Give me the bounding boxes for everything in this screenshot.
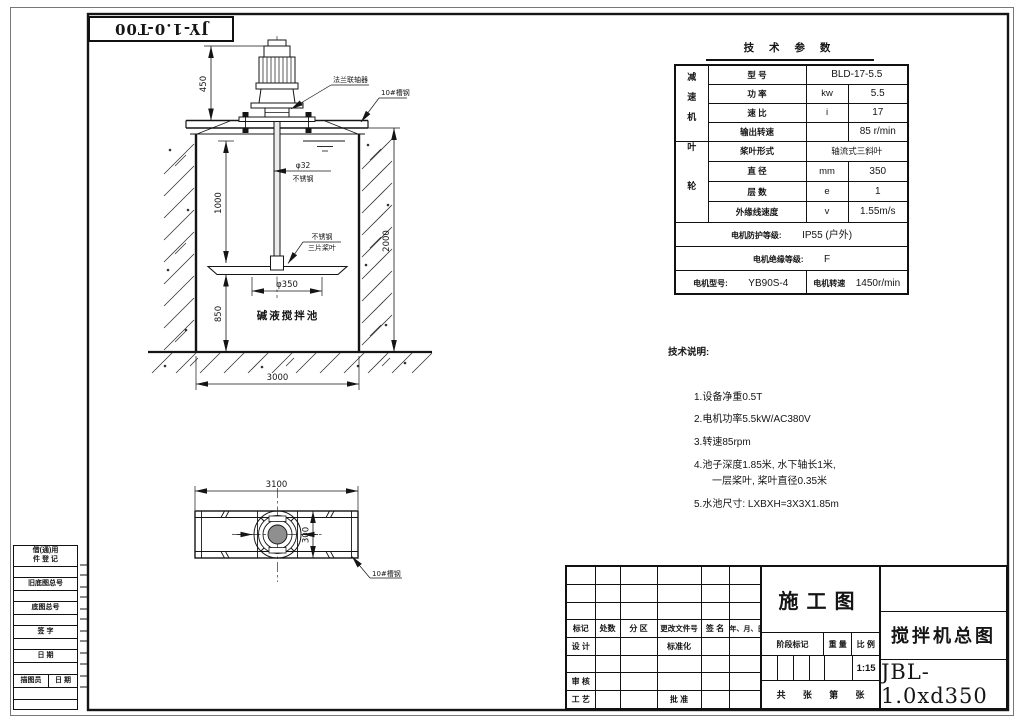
water-level-symbol [303, 141, 345, 151]
role-approve: 批 准 [657, 690, 701, 708]
param-unit [806, 122, 848, 141]
hdr-stage-mark: 阶段标记 [762, 633, 824, 655]
param-name: 层 数 [708, 182, 806, 202]
blank-row [14, 688, 77, 700]
role-review: 审 核 [567, 673, 595, 691]
dim-underwater-shaft: 1000 [214, 192, 224, 214]
motor-body [259, 57, 295, 83]
sheets-total-label: 共 [777, 688, 786, 701]
sheets-no-label: 第 [829, 688, 838, 701]
motor-speed-cell: 电机转速 1450r/min [806, 270, 908, 294]
stage-mark-cell [794, 656, 810, 680]
param-name: 输出转速 [708, 122, 806, 141]
earth-hatch-left [164, 144, 194, 350]
drawing-sheet: 450 1000 850 2000 φ350 3000 法兰联轴器 10#槽钢 … [0, 0, 1024, 723]
motor-insulation-row: 电机绝缘等级: F [675, 246, 908, 270]
note-item: 5.水池尺寸: LXBXH=3X3X1.85m [694, 495, 839, 510]
sign-row: 签 字 [14, 626, 77, 639]
hdr-zone: 分 区 [620, 620, 657, 638]
hdr-count: 处数 [595, 620, 620, 638]
title-block: 标记 处数 分 区 更改文件号 签 名 年、月、日 设 计 标准化 审 核 工 … [565, 565, 1008, 710]
dim-blade-diameter: φ350 [276, 280, 298, 290]
param-value: 1 [848, 182, 908, 202]
old-base-no-row: 旧底图总号 [14, 578, 77, 591]
sheets-unit: 张 [855, 688, 864, 701]
elevation-dimensions [196, 46, 400, 390]
tech-params-table: 减速机 型 号 BLD-17-5.5 功 率 kw 5.5 速 比 i 17 输… [674, 64, 909, 295]
borrowed-parts-row: 借(通)用件 登 记 [14, 546, 77, 567]
blank-row [14, 663, 77, 675]
param-value: 轴流式三斜叶 [806, 141, 908, 161]
dim-blade-to-bottom: 850 [214, 306, 224, 322]
mixer-shaft [274, 117, 280, 263]
tech-notes-title: 技术说明: [668, 344, 709, 358]
motor-protection-row: 电机防护等级: IP55 (户外) [675, 222, 908, 246]
base-no-row: 底图总号 [14, 602, 77, 615]
title-block-middle: 施工图 阶段标记 重 量 比 例 1:15 共 张 第 张 [760, 567, 879, 708]
param-name: 桨叶形式 [708, 141, 806, 161]
param-unit: kw [806, 84, 848, 103]
param-unit: i [806, 103, 848, 122]
param-value: 85 r/min [848, 122, 908, 141]
hdr-date: 年、月、日 [729, 620, 760, 638]
param-unit: e [806, 182, 848, 202]
label-channel-steel-elev: 10#槽钢 [381, 88, 410, 97]
tracer-row: 描图员 日 期 [14, 675, 77, 688]
drawing-code: JY-1.0-T00 [114, 20, 208, 38]
hdr-mark: 标记 [567, 620, 595, 638]
params-table-title: 技 术 参 数 [706, 40, 874, 61]
param-value: BLD-17-5.5 [806, 65, 908, 84]
sheets-unit: 张 [803, 688, 812, 701]
note-item: 一层桨叶, 桨叶直径0.35米 [712, 472, 827, 487]
plan-view: 3100 300 10#槽钢 [195, 480, 402, 582]
label-tank-name: 碱液搅拌池 [257, 309, 320, 322]
label-channel-steel-plan: 10#槽钢 [372, 569, 401, 578]
stage-document-label: 施工图 [762, 567, 879, 633]
dim-tank-depth: 2000 [382, 230, 392, 252]
blank-row [14, 700, 77, 709]
revision-table: 标记 处数 分 区 更改文件号 签 名 年、月、日 设 计 标准化 审 核 工 … [567, 567, 760, 708]
note-item: 1.设备净重0.5T [694, 388, 762, 403]
title-block-right: 搅拌机总图 JBL-1.0xd350 [879, 567, 1006, 708]
note-item: 3.转速85rpm [694, 433, 751, 448]
param-unit: mm [806, 161, 848, 181]
stage-mark-cell [810, 656, 826, 680]
mounting-plate [239, 117, 315, 122]
hdr-sign: 签 名 [701, 620, 729, 638]
param-name: 直 径 [708, 161, 806, 181]
label-shaft-diameter: φ32 [296, 161, 311, 170]
elevation-view: 450 1000 850 2000 φ350 3000 法兰联轴器 10#槽钢 … [148, 36, 432, 390]
param-name: 型 号 [708, 65, 806, 84]
drawing-number: JBL-1.0xd350 [881, 660, 1006, 708]
hdr-change-no: 更改文件号 [657, 620, 701, 638]
role-process: 工 艺 [567, 690, 595, 708]
drawing-title: 搅拌机总图 [881, 612, 1006, 660]
blank-row [14, 639, 77, 650]
note-item: 2.电机功率5.5kW/AC380V [694, 410, 811, 425]
dim-motor-height: 450 [199, 76, 209, 92]
dim-beam-length: 3100 [266, 480, 288, 490]
stage-mark-cell [778, 656, 794, 680]
param-name: 速 比 [708, 103, 806, 122]
param-name: 外缘线速度 [708, 202, 806, 222]
blank-row [14, 591, 77, 602]
param-value: 1.55m/s [848, 202, 908, 222]
param-unit: v [806, 202, 848, 222]
plan-shaft-section [268, 525, 287, 544]
param-value: 5.5 [848, 84, 908, 103]
blank-row [14, 615, 77, 626]
label-shaft-material: 不锈钢 [293, 174, 314, 183]
role-standardization: 标准化 [657, 638, 701, 656]
param-value: 17 [848, 103, 908, 122]
stage-mark-cell [762, 656, 778, 680]
label-flange-coupling: 法兰联轴器 [333, 75, 368, 84]
sheets-row: 共 张 第 张 [762, 681, 879, 708]
hdr-weight: 重 量 [824, 633, 853, 655]
scale-value: 1:15 [853, 656, 879, 680]
group-reducer: 减速机 [675, 65, 708, 141]
motor-assembly [239, 40, 315, 133]
dim-tank-width: 3000 [267, 373, 289, 383]
hdr-scale: 比 例 [852, 633, 879, 655]
date-row: 日 期 [14, 650, 77, 663]
motor-model-cell: 电机型号: YB90S-4 [675, 270, 806, 294]
company-cell [881, 567, 1006, 612]
dim-beam-width: 300 [302, 527, 312, 543]
param-value: 350 [848, 161, 908, 181]
blank-row [14, 567, 77, 578]
impeller [208, 256, 347, 275]
param-name: 功 率 [708, 84, 806, 103]
label-blade-type: 三片桨叶 [308, 243, 336, 252]
note-item: 4.池子深度1.85米, 水下轴长1米, [694, 456, 836, 471]
label-blade-material: 不锈钢 [312, 232, 333, 241]
earth-hatch-bottom [152, 353, 432, 373]
group-impeller: 叶轮 [675, 141, 708, 222]
margin-registration-block: 借(通)用件 登 记 旧底图总号 底图总号 签 字 日 期 描图员 日 期 [13, 545, 78, 710]
gear-reducer [259, 89, 295, 103]
weight-cell [825, 656, 853, 680]
role-design: 设 计 [567, 638, 595, 656]
drawing-code-box: JY-1.0-T00 [88, 16, 234, 42]
